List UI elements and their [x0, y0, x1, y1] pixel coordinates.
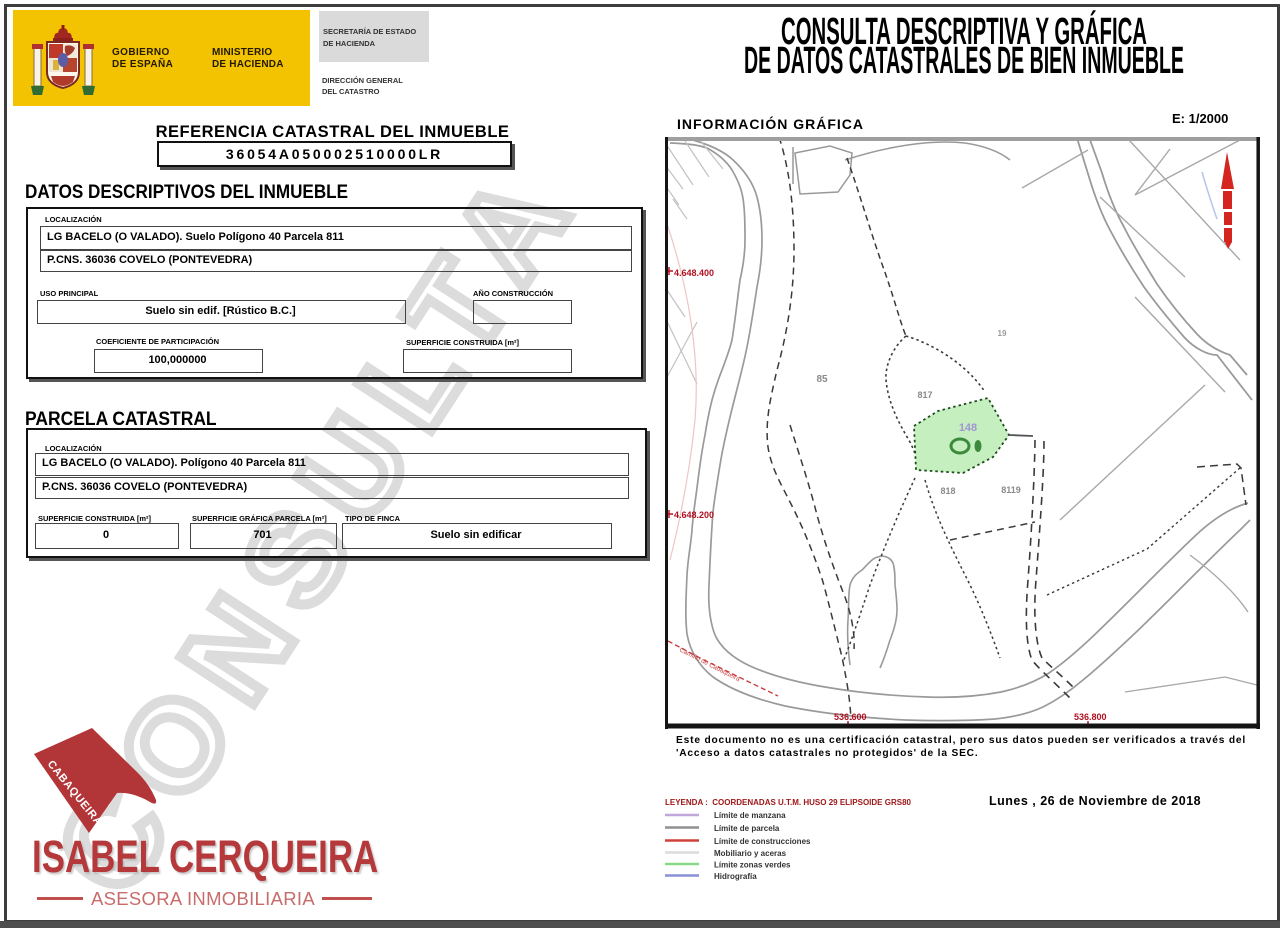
svg-text:818: 818 [940, 486, 955, 496]
svg-text:Límite de parcela: Límite de parcela [714, 824, 780, 833]
svg-text:Camiño de Cabaqueira: Camiño de Cabaqueira [678, 647, 741, 684]
svg-text:85: 85 [816, 374, 828, 385]
svg-text:Mobiliario y aceras: Mobiliario y aceras [714, 849, 787, 858]
svg-text:19: 19 [998, 329, 1007, 338]
svg-text:Límite de manzana: Límite de manzana [714, 811, 786, 820]
svg-text:817: 817 [917, 390, 932, 400]
svg-text:148: 148 [959, 422, 977, 434]
svg-text:536.800: 536.800 [1074, 712, 1107, 722]
svg-text:4.648.400: 4.648.400 [674, 268, 714, 278]
svg-text:Límite de construcciones: Límite de construcciones [714, 837, 811, 846]
svg-text:Hidrografía: Hidrografía [714, 872, 757, 881]
svg-text:536.600: 536.600 [834, 712, 867, 722]
svg-text:8119: 8119 [1001, 485, 1021, 495]
svg-text:4.648.200: 4.648.200 [674, 510, 714, 520]
svg-text:Límite zonas verdes: Límite zonas verdes [714, 861, 791, 870]
